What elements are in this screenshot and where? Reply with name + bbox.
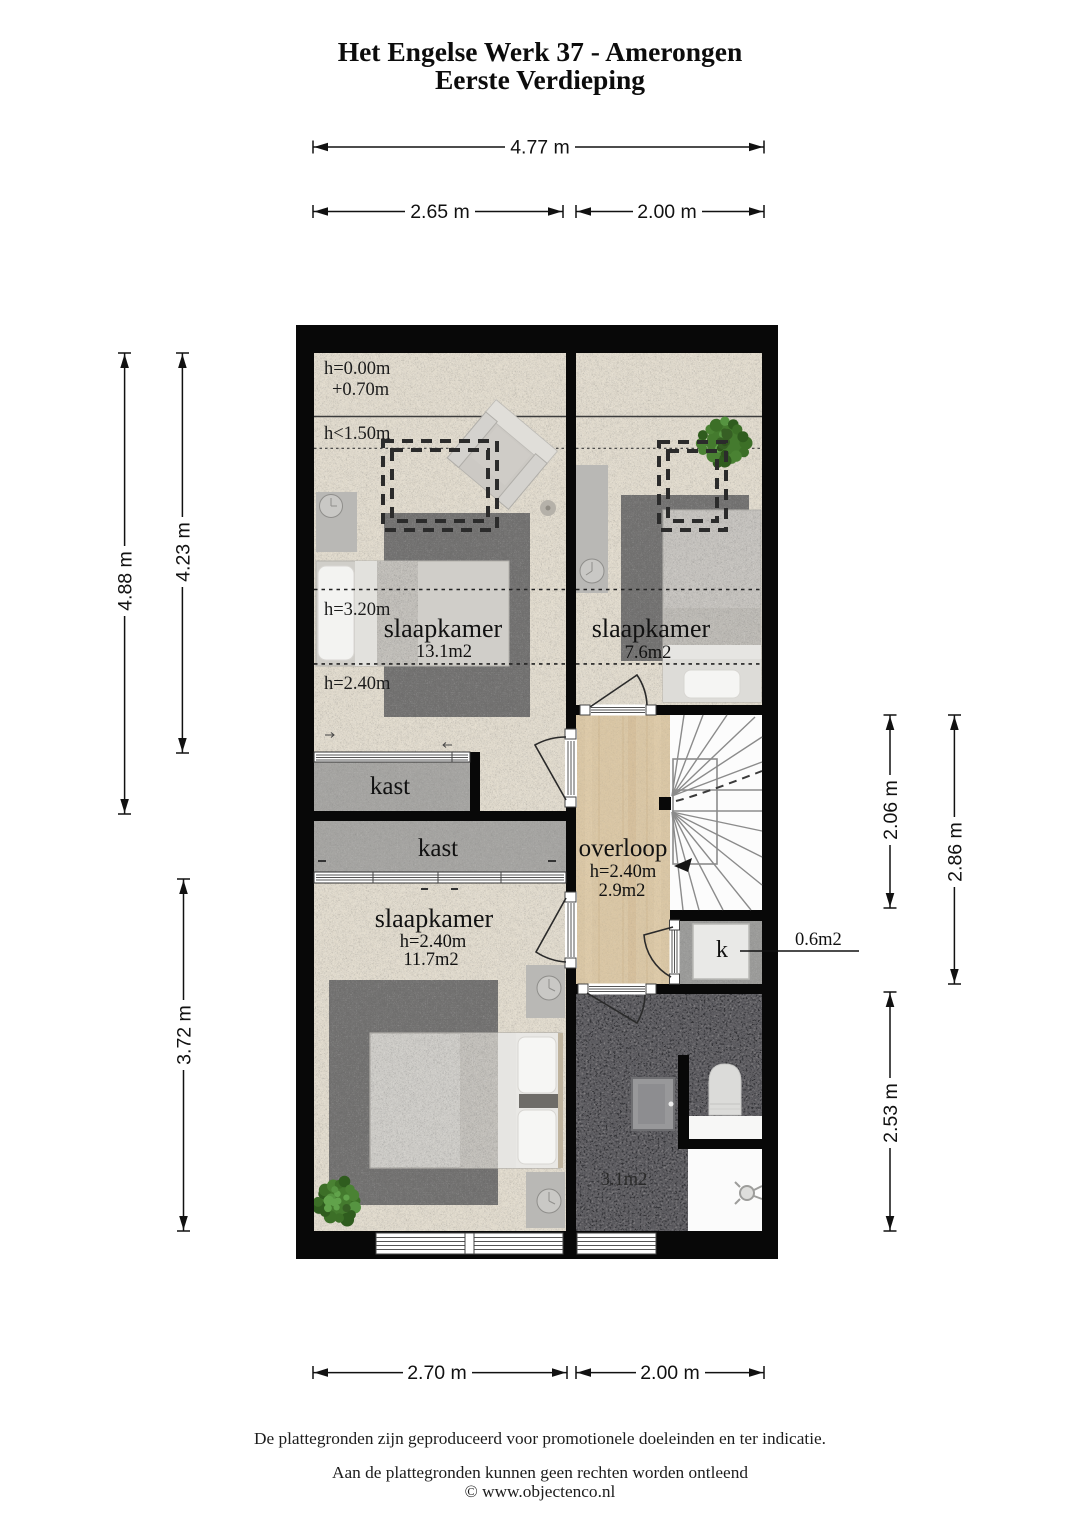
svg-text:+0.70m: +0.70m	[332, 380, 390, 400]
svg-text:2.00 m: 2.00 m	[640, 1362, 700, 1384]
svg-text:kast: kast	[418, 835, 458, 862]
svg-text:© www.objectenco.nl: © www.objectenco.nl	[465, 1482, 616, 1501]
svg-text:overloop: overloop	[579, 835, 668, 862]
svg-text:h=2.40m: h=2.40m	[324, 674, 391, 694]
svg-text:2.9m2: 2.9m2	[599, 881, 646, 901]
svg-text:13.1m2: 13.1m2	[416, 642, 472, 662]
svg-text:De plattegronden zijn geproduc: De plattegronden zijn geproduceerd voor …	[254, 1429, 826, 1448]
svg-text:7.6m2: 7.6m2	[625, 643, 672, 663]
svg-text:slaapkamer: slaapkamer	[592, 614, 711, 643]
svg-text:h=2.40m: h=2.40m	[590, 862, 657, 882]
svg-text:4.23 m: 4.23 m	[172, 522, 194, 582]
svg-text:2.06 m: 2.06 m	[880, 780, 902, 840]
svg-text:3.72 m: 3.72 m	[174, 1005, 196, 1065]
svg-text:slaapkamer: slaapkamer	[375, 904, 494, 933]
svg-text:0.6m2: 0.6m2	[795, 930, 842, 950]
svg-text:2.65 m: 2.65 m	[410, 201, 470, 223]
svg-text:h=3.20m: h=3.20m	[324, 600, 391, 620]
svg-text:Het Engelse Werk 37 - Ameronge: Het Engelse Werk 37 - Amerongen	[338, 36, 743, 67]
svg-text:2.86 m: 2.86 m	[944, 822, 966, 882]
svg-text:3.1m2: 3.1m2	[601, 1170, 648, 1190]
svg-text:h=2.40m: h=2.40m	[400, 932, 467, 952]
svg-text:2.00 m: 2.00 m	[637, 201, 697, 223]
svg-text:h<1.50m: h<1.50m	[324, 424, 391, 444]
svg-text:slaapkamer: slaapkamer	[384, 614, 503, 643]
svg-text:2.53 m: 2.53 m	[880, 1083, 902, 1143]
svg-text:2.70 m: 2.70 m	[407, 1362, 467, 1384]
svg-text:kast: kast	[370, 773, 410, 800]
svg-text:4.77 m: 4.77 m	[510, 137, 570, 159]
svg-text:k: k	[716, 937, 728, 963]
svg-text:Aan de plattegronden kunnen ge: Aan de plattegronden kunnen geen rechten…	[332, 1463, 748, 1482]
svg-text:h=0.00m: h=0.00m	[324, 359, 391, 379]
svg-text:11.7m2: 11.7m2	[403, 950, 458, 970]
svg-text:4.88 m: 4.88 m	[115, 551, 137, 611]
svg-text:Eerste Verdieping: Eerste Verdieping	[435, 64, 645, 95]
